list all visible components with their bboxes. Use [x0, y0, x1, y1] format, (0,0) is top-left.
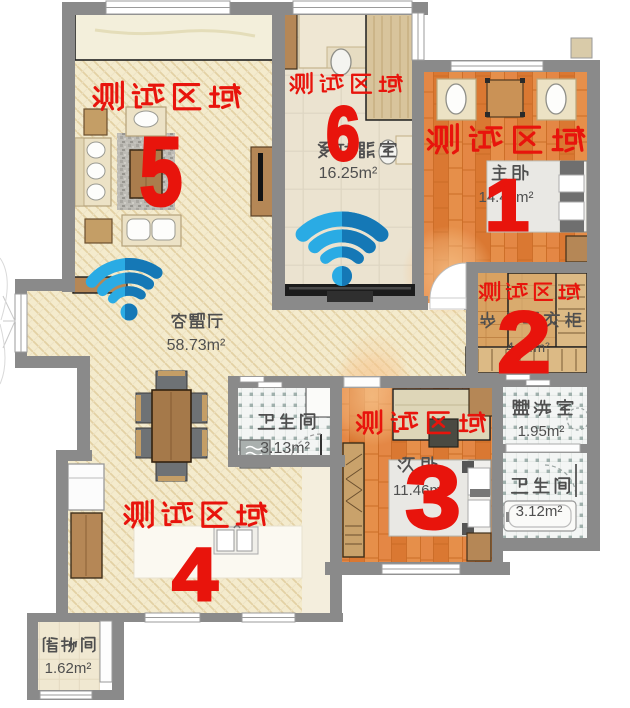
svg-text:5: 5 [139, 117, 182, 226]
svg-text:58.73m²: 58.73m² [167, 337, 226, 354]
svg-text:3: 3 [405, 448, 460, 548]
svg-text:2: 2 [497, 295, 551, 391]
svg-text:4: 4 [172, 534, 217, 616]
svg-text:3.13m²: 3.13m² [260, 440, 310, 457]
svg-text:1: 1 [485, 165, 529, 246]
svg-text:1.62m²: 1.62m² [45, 660, 92, 677]
svg-text:3.12m²: 3.12m² [516, 503, 563, 520]
svg-text:6: 6 [326, 92, 360, 177]
svg-text:1.95m²: 1.95m² [518, 423, 565, 440]
